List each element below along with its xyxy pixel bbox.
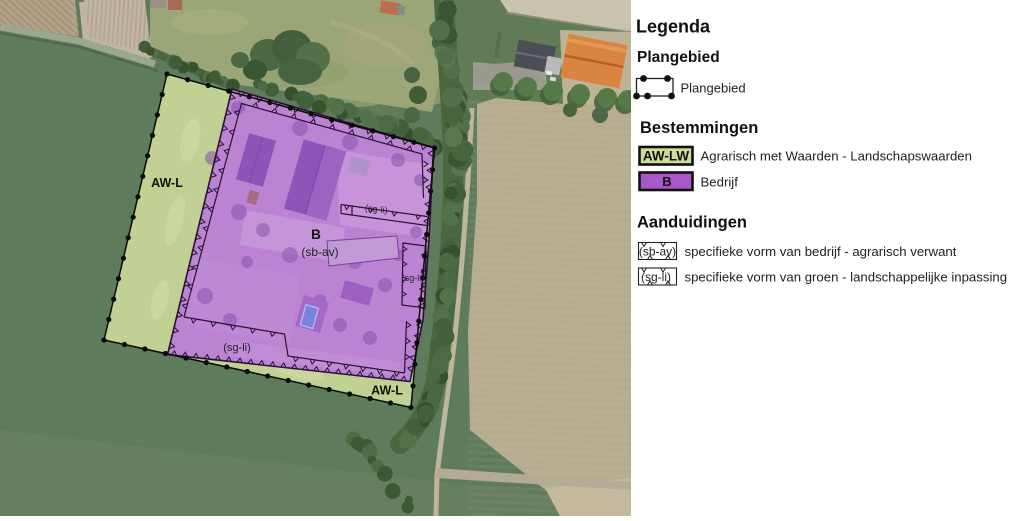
svg-text:(sb-av): (sb-av)	[301, 245, 338, 259]
svg-text:B: B	[662, 174, 671, 189]
svg-text:specifieke vorm van groen - la: specifieke vorm van groen - landschappel…	[685, 270, 1008, 285]
svg-text:Plangebied: Plangebied	[681, 81, 746, 96]
svg-text:Aanduidingen: Aanduidingen	[637, 214, 747, 232]
svg-text:Legenda: Legenda	[636, 17, 711, 37]
svg-text:Agrarisch met Waarden - Landsc: Agrarisch met Waarden - Landschapswaarde…	[701, 149, 972, 164]
svg-text:AW-LW: AW-LW	[643, 149, 689, 164]
svg-text:(sb-av): (sb-av)	[639, 245, 676, 259]
svg-text:B: B	[311, 227, 321, 242]
svg-text:Plangebied: Plangebied	[637, 49, 720, 66]
svg-text:(sg-li): (sg-li)	[402, 273, 425, 283]
svg-text:Bedrijf: Bedrijf	[701, 175, 739, 190]
svg-text:(sg-li): (sg-li)	[223, 342, 251, 354]
svg-text:specifieke vorm van bedrijf -: specifieke vorm van bedrijf - agrarisch …	[685, 244, 957, 259]
svg-text:AW-L: AW-L	[371, 384, 403, 398]
svg-text:AW-L: AW-L	[151, 176, 183, 190]
svg-text:Bestemmingen: Bestemmingen	[640, 119, 758, 137]
svg-text:(sg-li): (sg-li)	[641, 270, 671, 284]
